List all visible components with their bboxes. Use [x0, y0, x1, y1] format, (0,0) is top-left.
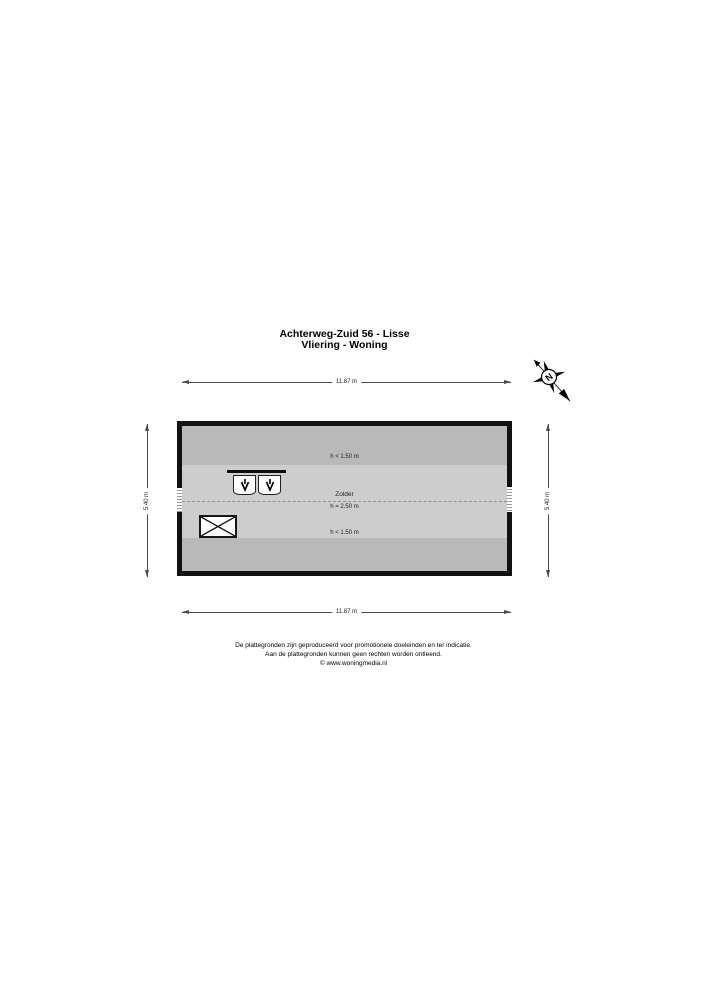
dimension-left-label: 5.40 m	[143, 487, 151, 513]
page-title: Achterweg-Zuid 56 - Lisse Vliering - Won…	[177, 329, 512, 351]
window-right-wall	[507, 487, 512, 512]
low-headroom-label-bottom: h < 1.50 m	[182, 530, 507, 537]
floor-plan: h < 1.50 m Zolder h = 2.50 m h < 1.50 m	[177, 421, 512, 576]
low-headroom-label-top: h < 1.50 m	[182, 454, 507, 461]
arrow-left-icon	[182, 380, 189, 384]
disclaimer-line-1: De plattegronden zijn geproduceerd voor …	[0, 641, 707, 650]
disclaimer-line-2: Aan de plattegronden kunnen geen rechten…	[0, 650, 707, 659]
arrow-up-icon	[145, 424, 149, 431]
dimension-bottom: 11.87 m	[182, 608, 511, 616]
arrow-left-icon	[182, 610, 189, 614]
arrow-up-icon	[546, 424, 550, 431]
arrow-down-icon	[546, 570, 550, 577]
dimension-top: 11.87 m	[182, 378, 511, 386]
floor-subtitle: Vliering - Woning	[177, 340, 512, 351]
low-headroom-zone-bottom	[182, 538, 507, 571]
dimension-left: 5.40 m	[143, 424, 151, 577]
north-compass-icon: N	[529, 356, 577, 406]
dimension-right-label: 5.40 m	[544, 487, 552, 513]
disclaimer-line-3: © www.woningmedia.nl	[0, 659, 707, 668]
window-opening-arrow-icon	[265, 478, 275, 492]
footer-disclaimer: De plattegronden zijn geproduceerd voor …	[0, 641, 707, 668]
beam	[227, 470, 286, 473]
floorplan-page: Achterweg-Zuid 56 - Lisse Vliering - Won…	[0, 0, 707, 1000]
room-name-label: Zolder	[182, 491, 507, 498]
ridge-dashed-line	[182, 501, 507, 502]
compass-svg: N	[529, 356, 577, 406]
dimension-bottom-label: 11.87 m	[332, 608, 361, 616]
room-height-label: h = 2.50 m	[182, 504, 507, 511]
arrow-right-icon	[504, 610, 511, 614]
dimension-top-label: 11.87 m	[332, 378, 361, 386]
window-opening-arrow-icon	[240, 478, 250, 492]
dimension-right: 5.40 m	[544, 424, 552, 577]
arrow-right-icon	[504, 380, 511, 384]
arrow-down-icon	[145, 570, 149, 577]
